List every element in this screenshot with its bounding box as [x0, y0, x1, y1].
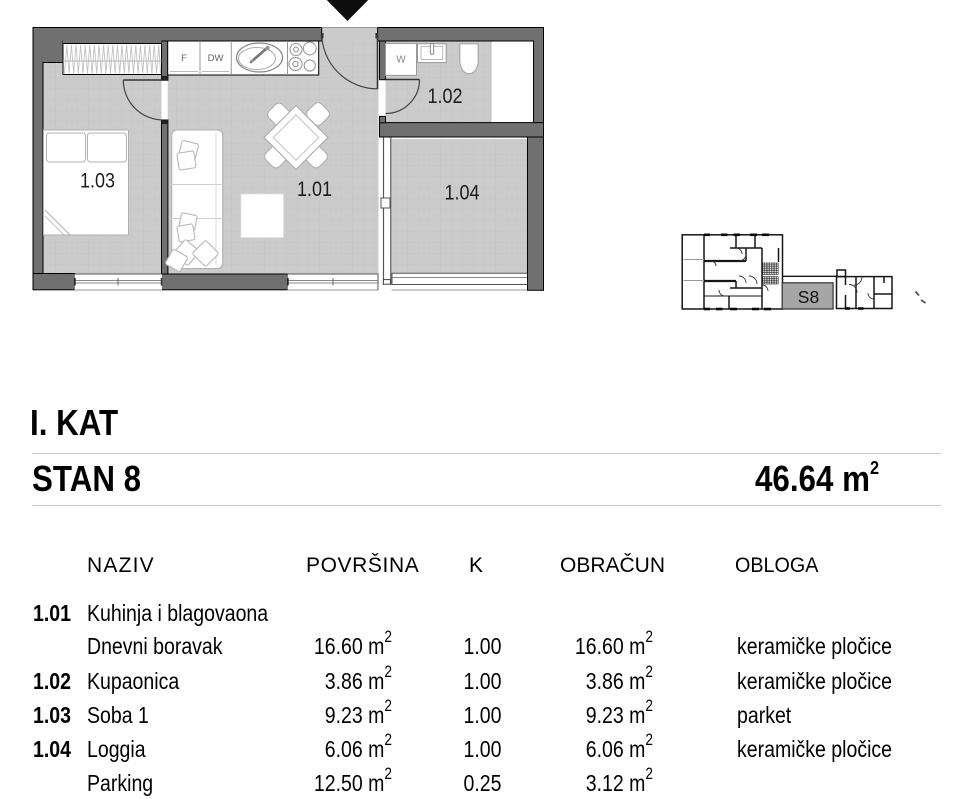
svg-text:F: F	[181, 53, 187, 64]
svg-text:1.03: 1.03	[80, 170, 115, 193]
svg-text:1.02: 1.02	[428, 85, 463, 108]
svg-text:DW: DW	[208, 53, 224, 64]
svg-text:S8: S8	[798, 287, 819, 307]
svg-text:1.04: 1.04	[445, 181, 480, 204]
svg-text:W: W	[396, 55, 406, 66]
svg-text:1.01: 1.01	[297, 178, 332, 201]
